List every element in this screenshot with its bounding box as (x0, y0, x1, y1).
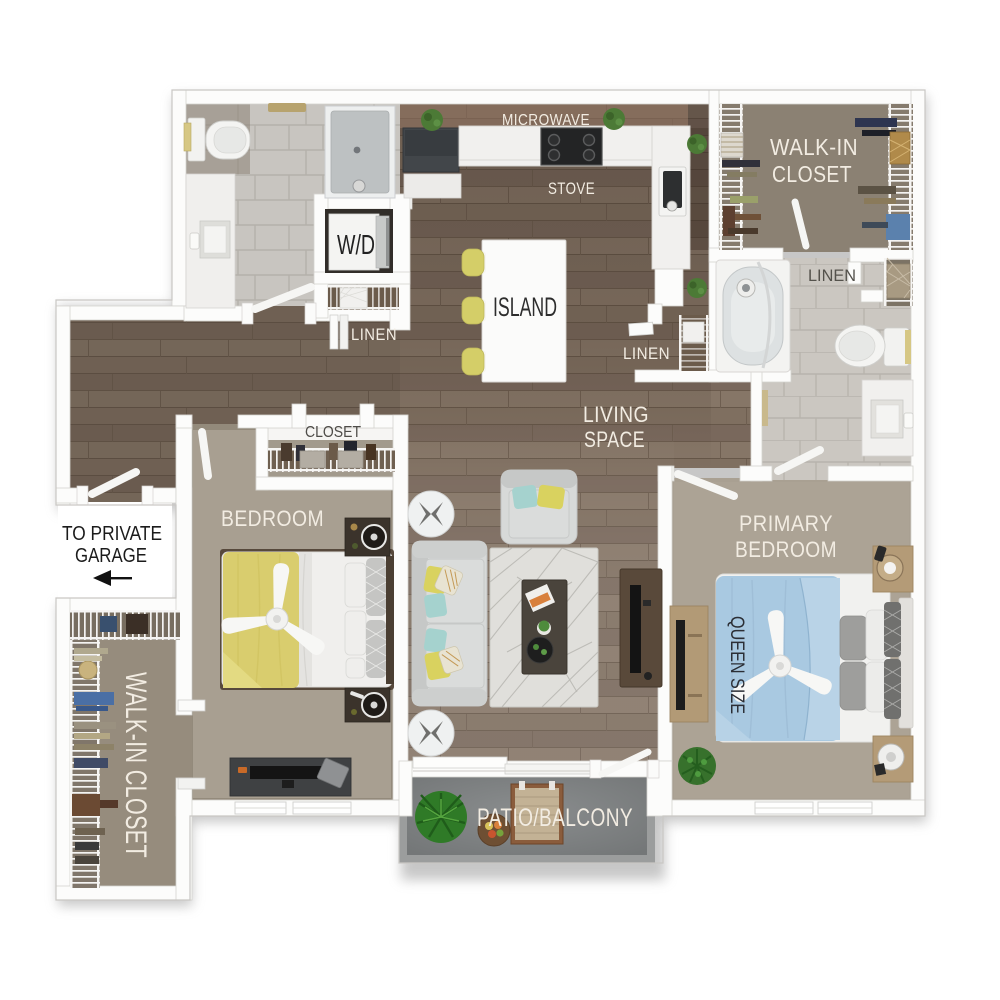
svg-text:QUEEN SIZE: QUEEN SIZE (726, 616, 747, 714)
svg-text:SPACE: SPACE (584, 427, 645, 452)
svg-text:W/D: W/D (337, 229, 375, 260)
svg-text:PRIMARY: PRIMARY (739, 511, 833, 536)
svg-text:PATIO/BALCONY: PATIO/BALCONY (477, 804, 633, 832)
svg-text:TO PRIVATE: TO PRIVATE (62, 523, 162, 545)
svg-text:ISLAND: ISLAND (493, 292, 557, 322)
svg-text:LIVING: LIVING (583, 402, 649, 427)
svg-text:LINEN: LINEN (351, 326, 397, 344)
svg-text:LINEN: LINEN (808, 267, 856, 285)
svg-text:CLOSET: CLOSET (772, 161, 852, 187)
svg-text:BEDROOM: BEDROOM (221, 506, 324, 531)
svg-text:WALK-IN CLOSET: WALK-IN CLOSET (119, 672, 152, 858)
svg-text:WALK-IN: WALK-IN (770, 134, 858, 160)
svg-text:GARAGE: GARAGE (75, 545, 147, 567)
svg-text:CLOSET: CLOSET (305, 424, 361, 441)
svg-text:BEDROOM: BEDROOM (735, 537, 837, 562)
svg-text:STOVE: STOVE (548, 180, 595, 198)
svg-text:LINEN: LINEN (623, 345, 670, 363)
svg-text:MICROWAVE: MICROWAVE (502, 112, 590, 129)
